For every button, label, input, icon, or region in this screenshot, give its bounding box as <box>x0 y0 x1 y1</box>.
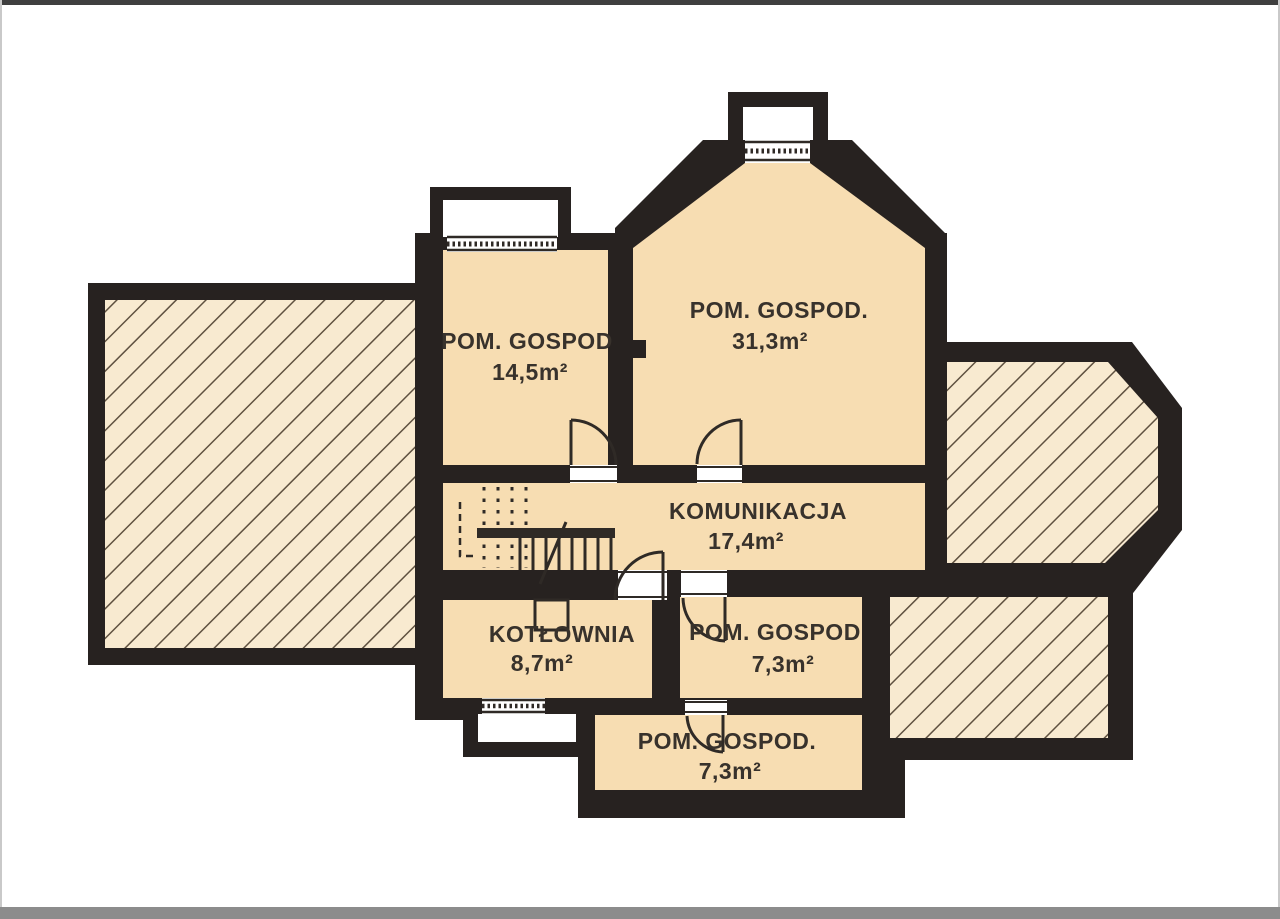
area-pom-gospod-big: 31,3m² <box>732 328 808 354</box>
label-pom-gospod-east: POM. GOSPOD <box>689 619 861 645</box>
wall-pier <box>633 340 646 358</box>
window-nw <box>447 235 557 252</box>
terrace-left <box>88 283 443 665</box>
label-pom-gospod-south: POM. GOSPOD. <box>638 728 817 754</box>
label-pom-gospod-big: POM. GOSPOD. <box>690 297 869 323</box>
room-komunikacja <box>443 483 925 570</box>
terrace-left-hatch <box>105 300 418 648</box>
page-bottom-border <box>0 907 1280 919</box>
floorplan-page: POM. GOSPOD 14,5m² POM. GOSPOD. 31,3m² K… <box>0 0 1280 919</box>
label-kotlownia: KOTŁOWNIA <box>489 621 635 647</box>
area-komunikacja: 17,4m² <box>708 528 784 554</box>
terrace-right-lower <box>862 597 1133 760</box>
room-kotlownia <box>443 600 652 698</box>
window-top <box>745 140 810 163</box>
terrace-right-lower-hatch <box>890 597 1108 738</box>
area-pom-gospod-nw: 14,5m² <box>492 359 568 385</box>
threshold-kotlownia <box>618 570 667 600</box>
area-kotlownia: 8,7m² <box>511 650 574 676</box>
floorplan-drawing: POM. GOSPOD 14,5m² POM. GOSPOD. 31,3m² K… <box>0 0 1280 919</box>
room-pom-gospod-east <box>680 597 862 698</box>
threshold-east-room <box>681 570 727 597</box>
label-pom-gospod-nw: POM. GOSPOD <box>441 328 613 354</box>
label-komunikacja: KOMUNIKACJA <box>669 498 847 524</box>
page-top-border <box>0 0 1280 5</box>
terrace-right-upper-hatch <box>947 362 1158 563</box>
page-left-border <box>0 0 2 919</box>
area-pom-gospod-south: 7,3m² <box>699 758 762 784</box>
area-pom-gospod-east: 7,3m² <box>752 651 815 677</box>
terrace-right-upper <box>925 342 1182 597</box>
room-pom-gospod-nw <box>443 250 608 465</box>
window-south <box>482 698 545 714</box>
